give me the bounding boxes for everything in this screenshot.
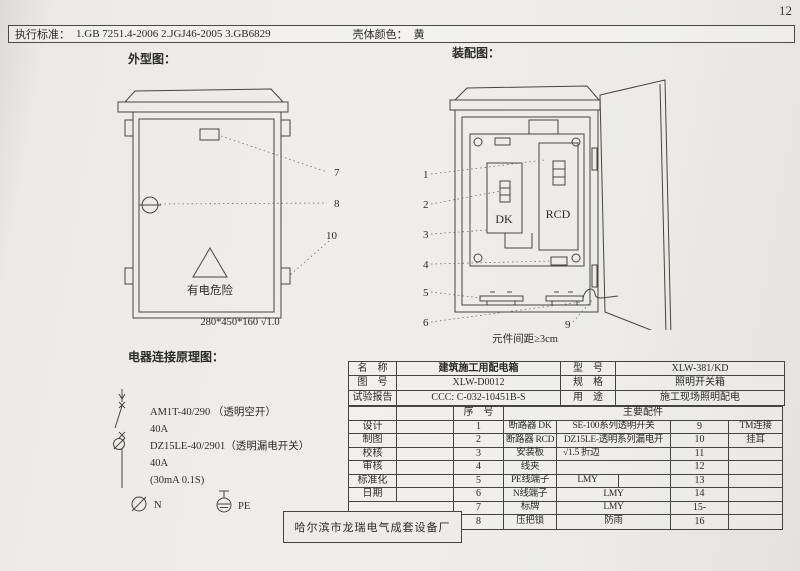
info-label: 图 号 xyxy=(349,376,397,390)
leader-9 xyxy=(573,298,594,322)
standards-list: 1.GB 7251.4-2006 2.JGJ46-2005 3.GB6829 xyxy=(76,28,277,40)
part-name: 标牌 xyxy=(504,502,557,516)
part-desc-extra xyxy=(619,475,671,489)
callout-10: 10 xyxy=(326,230,338,242)
part-no: 4 xyxy=(454,461,504,475)
info-label: 型 号 xyxy=(561,362,616,376)
part-no2: 16 xyxy=(671,515,729,529)
part-desc2 xyxy=(729,448,782,462)
part-desc2 xyxy=(729,475,782,489)
breaker-chain-symbol xyxy=(114,389,126,488)
main-parts-header: 主要配件 xyxy=(504,407,782,421)
asm-hinge-bottom xyxy=(592,265,597,287)
panel-screw-tl xyxy=(474,138,482,146)
part-no: 2 xyxy=(454,434,504,448)
outline-drawing: 有电危险 7 8 10 xyxy=(75,70,355,322)
info-label: 用 途 xyxy=(561,391,616,405)
part-desc: LMY xyxy=(557,502,671,516)
part-desc: SE-100系列透明开关 xyxy=(557,421,671,435)
part-no2: 13 xyxy=(671,475,729,489)
part-desc2: TM连接 xyxy=(729,421,782,435)
part-desc2 xyxy=(729,515,782,529)
door-bond-wire xyxy=(583,289,618,298)
callout-7: 7 xyxy=(334,167,340,179)
callout-3: 3 xyxy=(423,229,429,241)
part-name: 压把锁 xyxy=(504,515,557,529)
terminal-strip-n xyxy=(480,292,523,305)
part-no: 1 xyxy=(454,421,504,435)
part-no: 3 xyxy=(454,448,504,462)
part-no2: 15- xyxy=(671,502,729,516)
sign-value-cell xyxy=(397,421,454,435)
part-desc2: 挂耳 xyxy=(729,434,782,448)
part-no2: 11 xyxy=(671,448,729,462)
part-no: 6 xyxy=(454,488,504,502)
info-value: XLW-D0012 xyxy=(397,376,561,390)
callout-9: 9 xyxy=(565,319,571,330)
leader-3 xyxy=(431,230,488,234)
standards-label: 执行标准： xyxy=(9,26,76,42)
sign-label: 日期 xyxy=(349,488,397,502)
leader-5 xyxy=(431,292,481,298)
tab-top-right xyxy=(281,120,290,136)
rcd-toggle xyxy=(553,161,565,185)
tab-top-left xyxy=(125,120,133,136)
info-value: CCC: C-032-10451B-S xyxy=(397,391,561,405)
callout-1: 1 xyxy=(423,169,429,181)
wire-duct xyxy=(529,120,558,134)
leader-4 xyxy=(431,261,551,264)
schematic-line-4: 40A xyxy=(150,458,169,469)
schematic-line-2: 40A xyxy=(150,424,169,435)
empty-cell xyxy=(349,407,397,421)
schematic-line-3: DZ15LE-40/2901（透明漏电开关） xyxy=(150,439,309,452)
n-terminal-label: N xyxy=(154,500,162,511)
sign-value-cell xyxy=(397,448,454,462)
part-desc: DZ15LE-透明系列漏电开 xyxy=(557,434,671,448)
seq-header: 序 号 xyxy=(454,407,504,421)
cabinet-roof-brim xyxy=(118,102,288,112)
part-name: 断路器 DK xyxy=(504,421,557,435)
empty-cell xyxy=(397,407,454,421)
part-name: 线夹 xyxy=(504,461,557,475)
part-desc2 xyxy=(729,488,782,502)
part-no2: 12 xyxy=(671,461,729,475)
n-terminal-icon xyxy=(132,497,146,511)
cabinet-door xyxy=(139,119,274,312)
asm-door-thickness xyxy=(660,84,666,330)
pe-terminal-icon xyxy=(217,491,231,512)
dk-rail-step xyxy=(505,233,532,248)
assembly-drawing: DK RCD 1 2 3 4 5 6 9 xyxy=(415,60,685,330)
sign-label: 审核 xyxy=(349,461,397,475)
callout-6: 6 xyxy=(423,317,429,329)
sign-value-cell xyxy=(397,475,454,489)
panel-slot-top xyxy=(495,138,510,145)
dk-label: DK xyxy=(495,212,513,226)
callout-5: 5 xyxy=(423,287,429,299)
warning-text: 有电危险 xyxy=(187,283,233,297)
info-value: XLW-381/KD xyxy=(616,362,784,376)
assembly-title: 装配图： xyxy=(452,44,500,61)
assembly-note: 元件间距≥3cm xyxy=(445,331,605,346)
callout-8: 8 xyxy=(334,198,340,210)
part-desc2 xyxy=(729,502,782,516)
sign-label: 设计 xyxy=(349,421,397,435)
leader-1 xyxy=(431,160,545,174)
sign-value-cell xyxy=(397,461,454,475)
asm-roof-brim xyxy=(450,100,600,110)
shell-color-value: 黄 xyxy=(414,26,431,42)
panel-screw-tr xyxy=(572,138,580,146)
part-desc: √1.5 折边 xyxy=(557,448,671,462)
sign-label: 制图 xyxy=(349,434,397,448)
part-desc: 防雨 xyxy=(557,515,671,529)
dk-toggle xyxy=(500,181,510,202)
warning-triangle-icon xyxy=(193,248,227,277)
standards-header-bar: 执行标准： 1.GB 7251.4-2006 2.JGJ46-2005 3.GB… xyxy=(8,25,795,43)
outline-dimension: 280*450*160 √1.0 xyxy=(160,317,320,328)
shell-color-label: 壳体颜色： xyxy=(347,26,414,42)
info-value: 施工现场照明配电 xyxy=(616,391,784,405)
part-no: 5 xyxy=(454,475,504,489)
asm-hinge-top xyxy=(592,148,597,170)
sign-value-cell xyxy=(397,434,454,448)
callout-2: 2 xyxy=(423,199,429,211)
part-no2: 9 xyxy=(671,421,729,435)
sign-label: 标准化 xyxy=(349,475,397,489)
panel-screw-bl xyxy=(474,254,482,262)
cabinet-roof-top xyxy=(125,89,283,102)
schematic-title: 电器连接原理图： xyxy=(128,348,224,365)
leader-8 xyxy=(160,203,327,204)
scanned-drawing-page: 12 执行标准： 1.GB 7251.4-2006 2.JGJ46-2005 3… xyxy=(0,0,800,571)
asm-body xyxy=(455,110,598,312)
part-name: PE线端子 xyxy=(504,475,557,489)
page-number: 12 xyxy=(779,3,792,19)
rcd-breaker xyxy=(539,143,578,250)
info-table: 名 称 建筑施工用配电箱 型 号 XLW-381/KD 图 号 XLW-D001… xyxy=(348,361,785,406)
outline-title: 外型图： xyxy=(128,50,176,67)
asm-opening xyxy=(462,117,590,305)
part-name: 安装板 xyxy=(504,448,557,462)
schematic-line-5: (30mA 0.1S) xyxy=(150,475,205,486)
part-desc: LMY xyxy=(557,488,671,502)
part-no2: 10 xyxy=(671,434,729,448)
part-no2: 14 xyxy=(671,488,729,502)
info-label: 名 称 xyxy=(349,362,397,376)
part-desc: LMY xyxy=(557,475,619,489)
callout-4: 4 xyxy=(423,259,429,271)
asm-roof-top xyxy=(455,86,599,100)
part-name: N线端子 xyxy=(504,488,557,502)
manufacturer-box: 哈尔滨市龙瑞电气成套设备厂 xyxy=(283,511,462,543)
leader-2 xyxy=(431,191,501,204)
sign-label: 校核 xyxy=(349,448,397,462)
info-value: 照明开关箱 xyxy=(616,376,784,390)
sign-value-cell xyxy=(397,488,454,502)
panel-screw-br xyxy=(572,254,580,262)
part-desc2 xyxy=(729,461,782,475)
part-desc xyxy=(557,461,671,475)
info-label: 试验报告 xyxy=(349,391,397,405)
terminal-strip-pe xyxy=(546,292,583,305)
pe-terminal-label: PE xyxy=(238,501,250,512)
leader-10 xyxy=(289,241,329,276)
panel-slot-bottom xyxy=(551,257,567,265)
info-label: 规 格 xyxy=(561,376,616,390)
tab-bottom-left xyxy=(125,268,133,284)
schematic-line-1: AM1T-40/290 （透明空开） xyxy=(150,405,276,418)
info-value: 建筑施工用配电箱 xyxy=(397,362,561,376)
part-name: 断路器 RCD xyxy=(504,434,557,448)
nameplate xyxy=(200,129,219,140)
tab-bottom-right xyxy=(281,268,290,284)
rcd-label: RCD xyxy=(546,207,571,221)
